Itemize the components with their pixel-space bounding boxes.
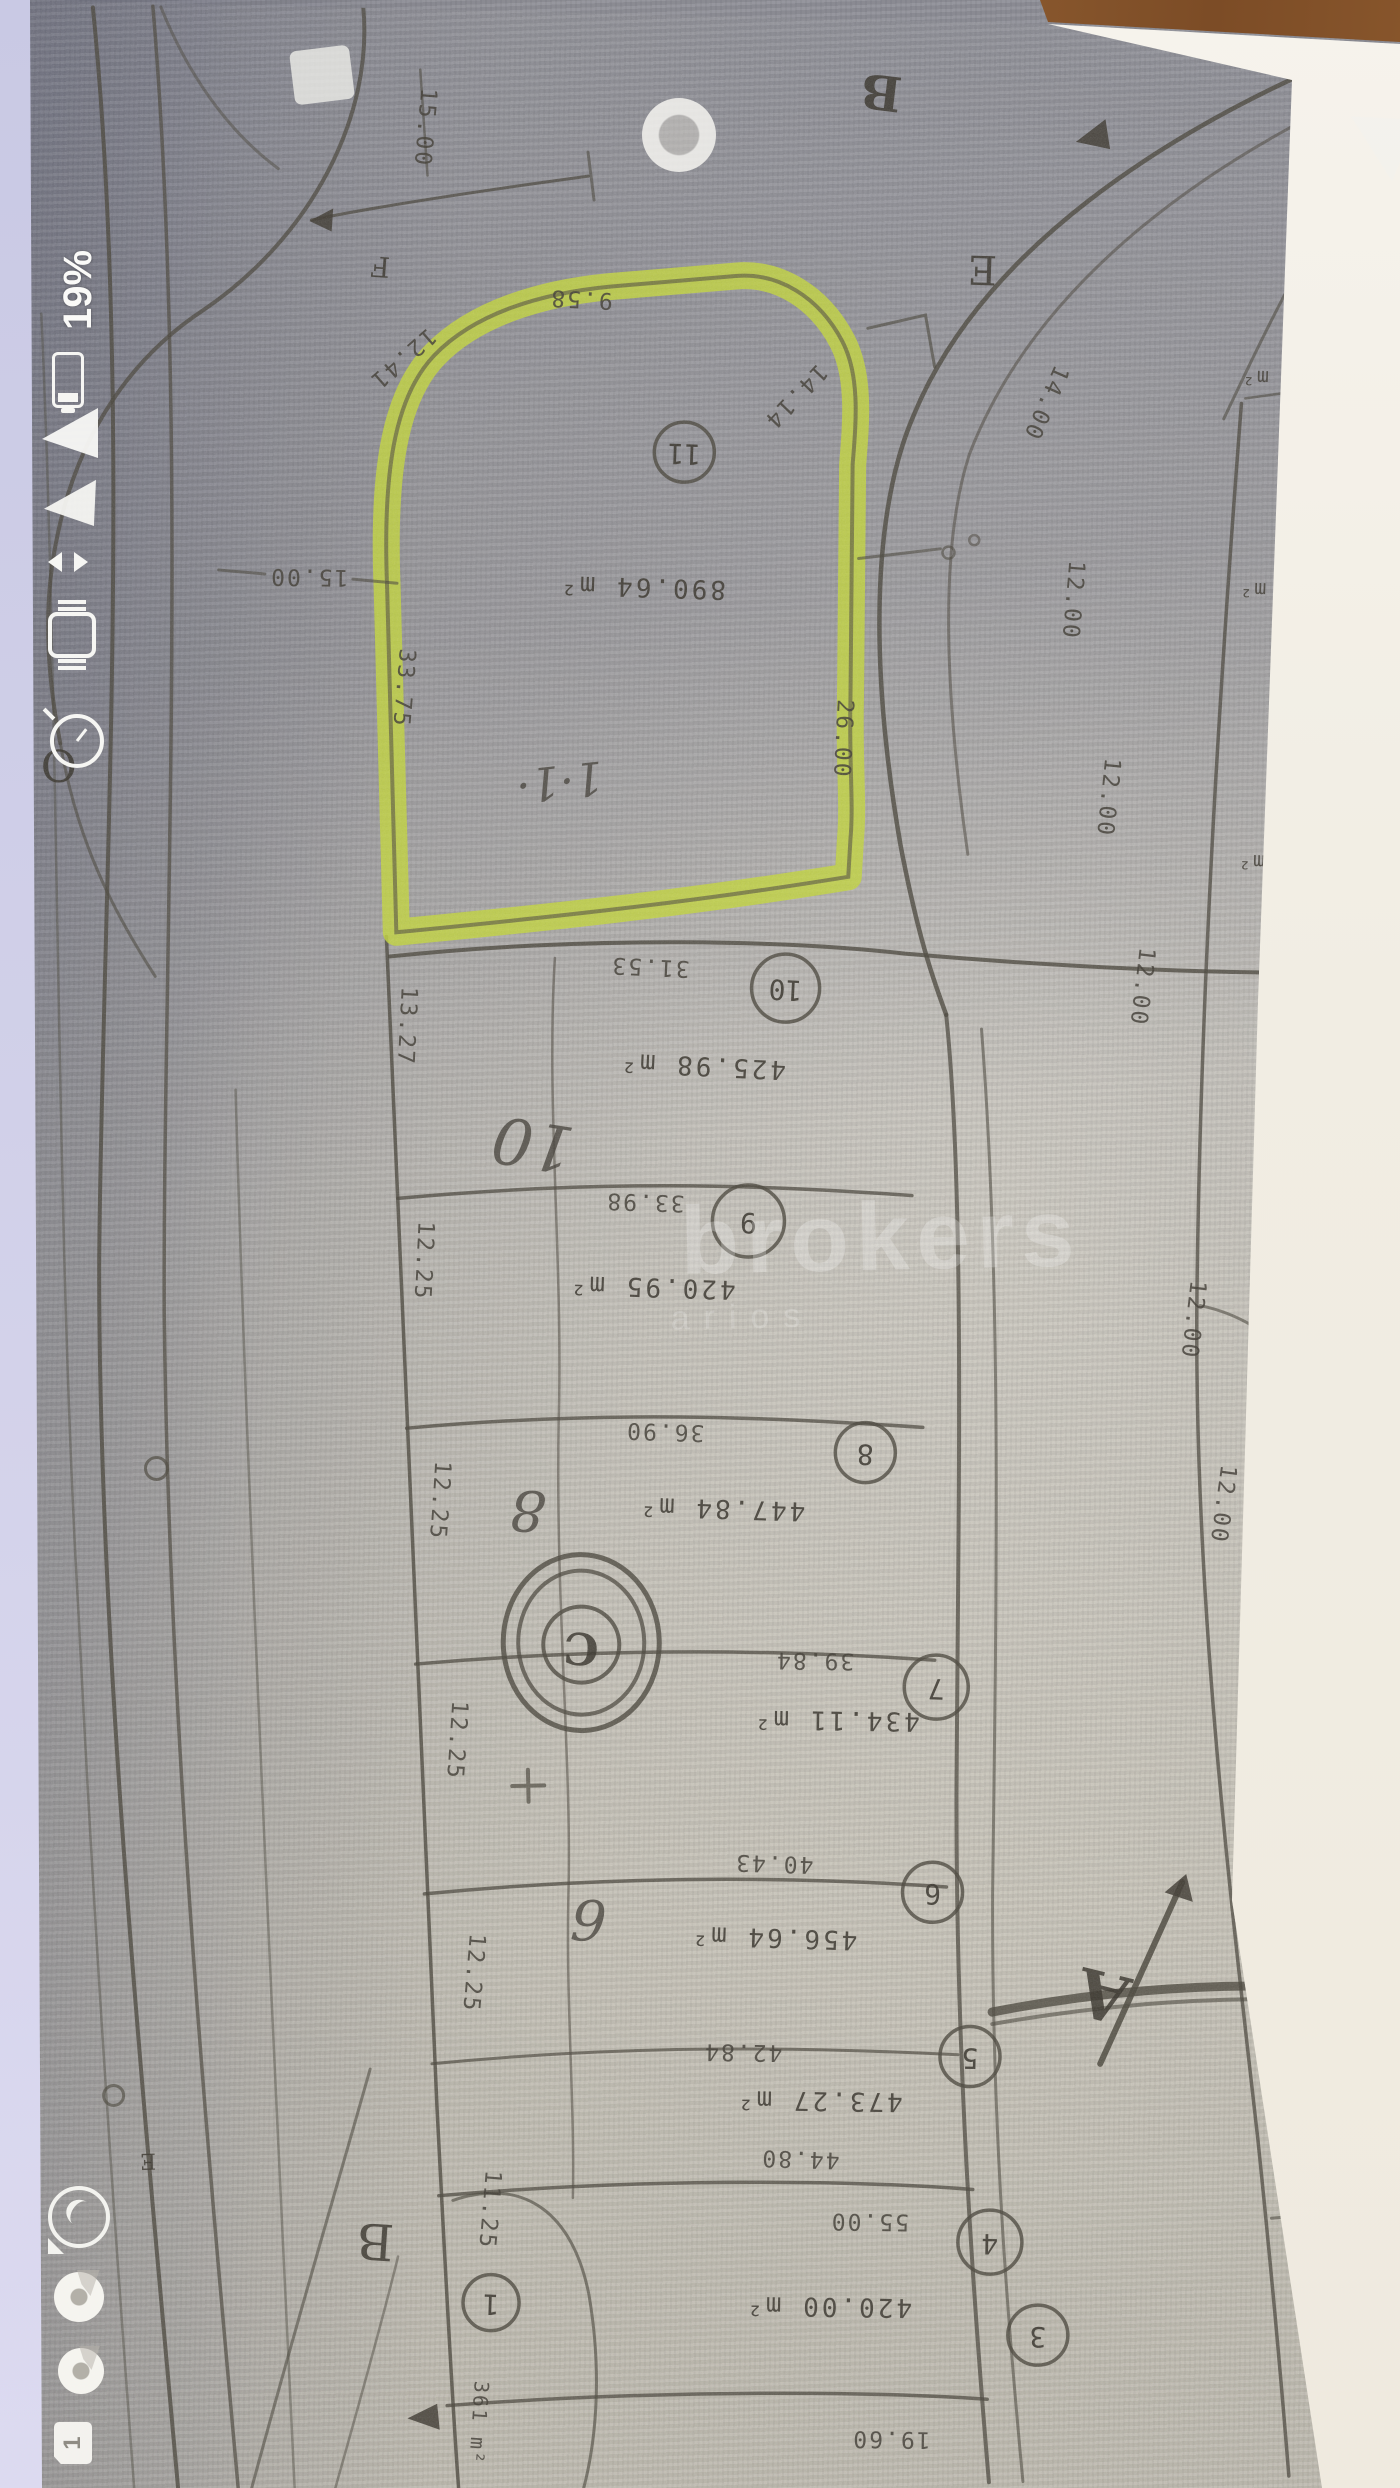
cadastral-map-drawing: C 11 10 9 8 7 6 5 4 3 [0, 0, 1400, 2488]
scan-noise [0, 0, 1400, 2488]
sim-card-icon: 1 [54, 2422, 92, 2464]
home-circle-icon[interactable] [642, 98, 716, 172]
battery-icon [52, 352, 84, 408]
vibrate-icon [48, 552, 62, 572]
recents-square-icon[interactable] [289, 45, 355, 106]
battery-percent: 19% [56, 230, 100, 350]
chrome-icon [58, 2348, 104, 2394]
whatsapp-icon [48, 2186, 110, 2248]
alarm-clock-icon [50, 714, 104, 768]
chrome-icon [54, 2272, 104, 2322]
photo-of-cadastral-map: C 11 10 9 8 7 6 5 4 3 [0, 0, 1400, 2488]
smartwatch-icon [48, 612, 96, 658]
vibrate-icon [74, 552, 88, 572]
